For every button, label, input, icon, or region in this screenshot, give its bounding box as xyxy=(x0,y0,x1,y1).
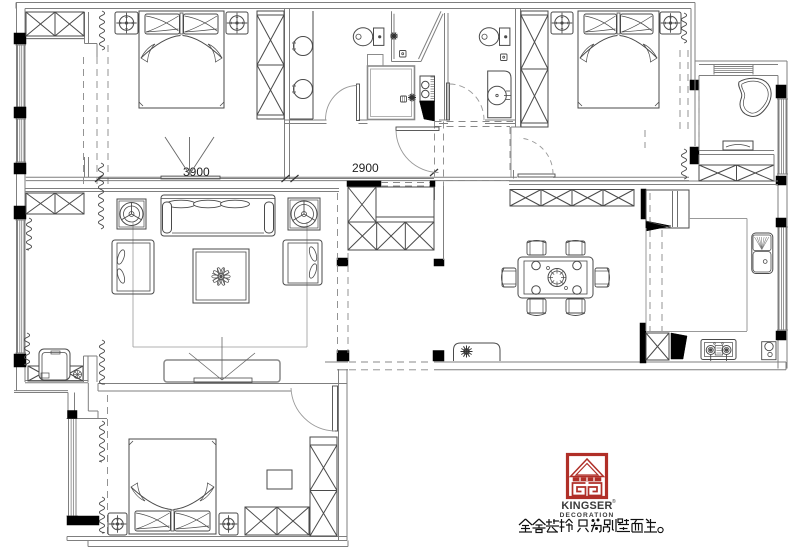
svg-text:2900: 2900 xyxy=(352,161,379,175)
svg-text:®: ® xyxy=(612,498,616,505)
svg-text:KINGSER: KINGSER xyxy=(561,500,612,512)
svg-text:3900: 3900 xyxy=(183,165,210,179)
svg-text:DECORATION: DECORATION xyxy=(560,512,615,519)
